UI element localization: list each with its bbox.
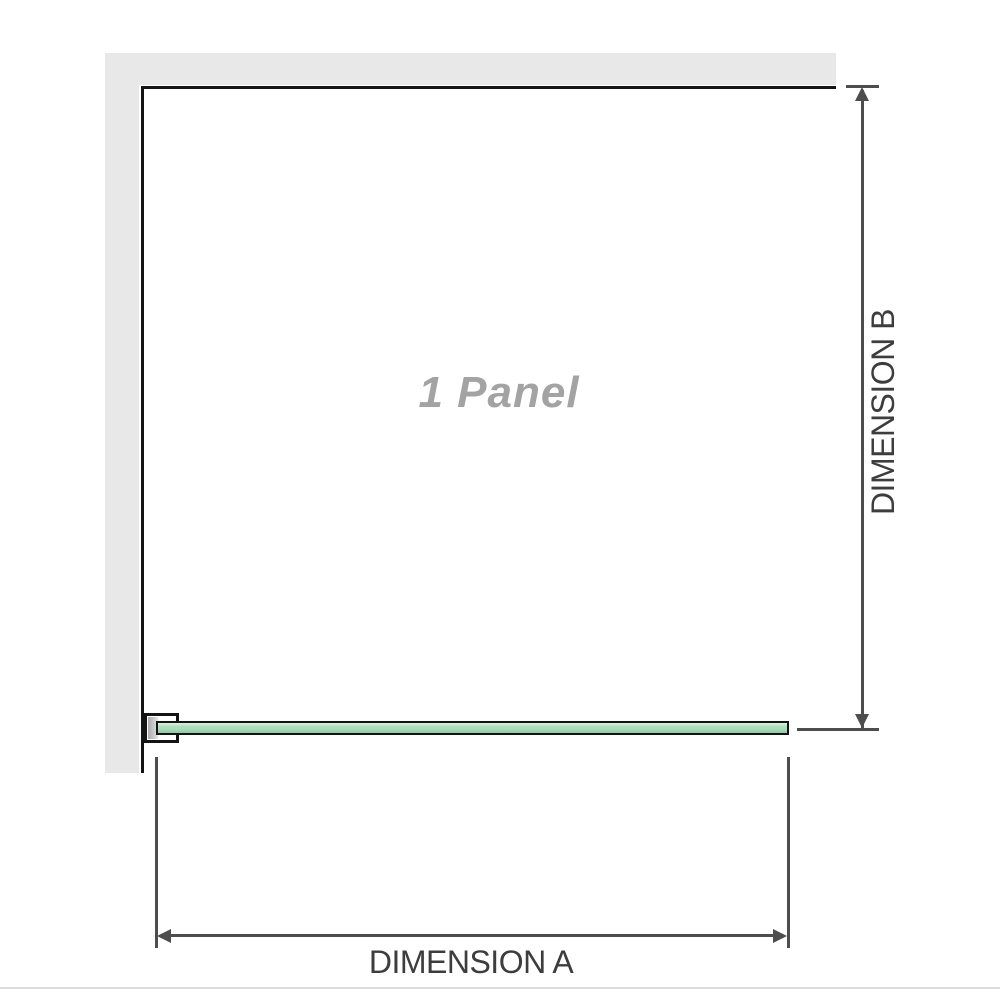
- glass-panel: [156, 721, 789, 735]
- arrow-right-icon: [773, 929, 787, 943]
- panel-count-label: 1 Panel: [349, 368, 649, 418]
- diagram-canvas: 1 Panel DIMENSION B DIMENSION A: [0, 0, 1000, 1000]
- dimension-a-extension-left: [155, 757, 158, 948]
- page-bottom-divider: [0, 987, 1000, 989]
- dimension-b-label: DIMENSION B: [863, 262, 903, 562]
- arrow-down-icon: [855, 714, 869, 728]
- dimension-a-label: DIMENSION A: [321, 944, 621, 981]
- wall-segment-left: [105, 53, 139, 773]
- frame-left-edge: [141, 86, 144, 773]
- dimension-b-tick-bottom: [797, 728, 879, 731]
- dimension-a-line: [170, 934, 776, 937]
- wall-segment-top: [105, 53, 836, 85]
- arrow-up-icon: [855, 87, 869, 101]
- dimension-a-extension-right: [787, 757, 790, 948]
- arrow-left-icon: [157, 929, 171, 943]
- frame-top-edge: [141, 86, 836, 89]
